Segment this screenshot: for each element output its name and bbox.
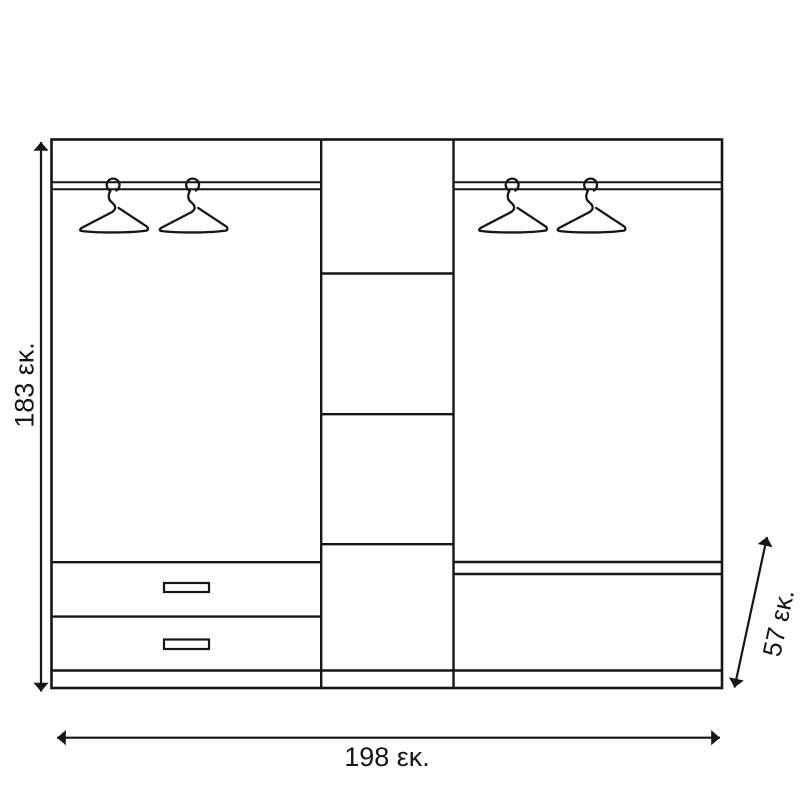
svg-text:57 εκ.: 57 εκ. (756, 587, 800, 660)
svg-text:183 εκ.: 183 εκ. (10, 342, 40, 428)
svg-text:198 εκ.: 198 εκ. (344, 742, 430, 772)
